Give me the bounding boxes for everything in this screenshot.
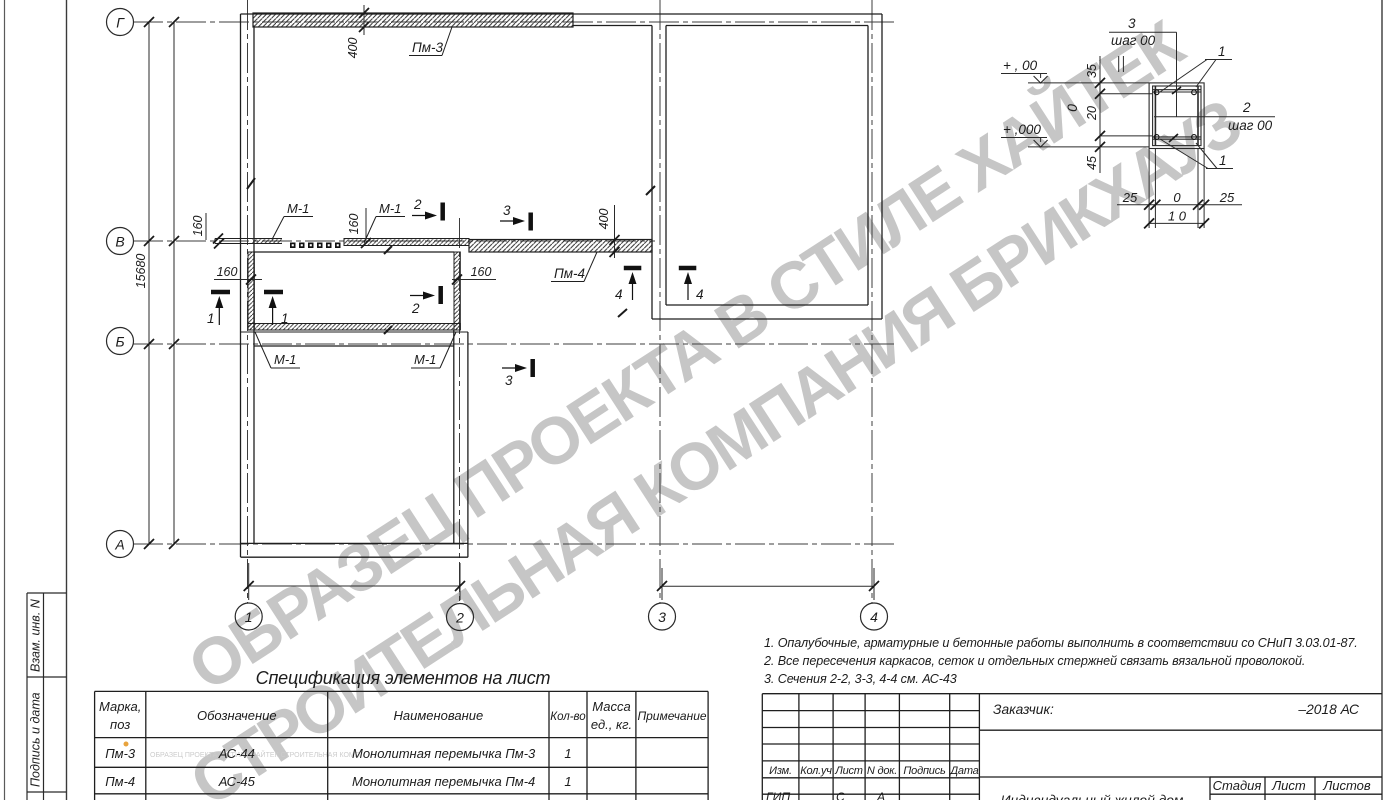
svg-text:Листов: Листов (1322, 778, 1371, 793)
svg-text:400: 400 (346, 38, 360, 59)
svg-text:Подпись: Подпись (903, 765, 946, 777)
svg-text:160: 160 (471, 265, 492, 279)
svg-text:Лист: Лист (834, 765, 863, 777)
svg-text:Лист: Лист (1271, 778, 1306, 793)
svg-text:+ , 00: + , 00 (1003, 58, 1038, 73)
svg-text:0: 0 (1173, 190, 1181, 205)
svg-text:1. Опалубочные, арматурные: 1. Опалубочные, арматурные и бетонные ра… (764, 636, 1358, 650)
svg-text:25: 25 (1122, 190, 1138, 205)
svg-text:Марка,: Марка, (99, 699, 141, 714)
svg-text:1: 1 (281, 311, 289, 326)
svg-text:А: А (876, 790, 885, 800)
svg-text:АС-44: АС-44 (218, 746, 255, 761)
svg-text:2: 2 (413, 197, 422, 212)
svg-text:20: 20 (1085, 106, 1099, 121)
svg-text:М-1: М-1 (379, 201, 401, 216)
svg-text:М-1: М-1 (287, 201, 309, 216)
svg-text:М-1: М-1 (414, 352, 436, 367)
svg-text:Наименование: Наименование (394, 708, 484, 723)
svg-text:4: 4 (870, 609, 878, 625)
svg-text:Г: Г (116, 15, 125, 31)
svg-text:160: 160 (217, 265, 238, 279)
svg-text:М-1: М-1 (274, 352, 296, 367)
svg-text:ед., кг.: ед., кг. (591, 717, 632, 732)
svg-text:Подпись и дата: Подпись и дата (29, 692, 43, 787)
svg-text:Пм-4: Пм-4 (105, 774, 135, 789)
svg-text:Пм-3: Пм-3 (105, 746, 136, 761)
svg-text:1 0: 1 0 (1168, 209, 1187, 224)
svg-text:1: 1 (564, 774, 571, 789)
svg-text:Кол-во: Кол-во (550, 711, 586, 723)
svg-text:0: 0 (1064, 104, 1080, 112)
svg-text:Изм.: Изм. (769, 765, 792, 777)
svg-text:Обозначение: Обозначение (197, 708, 277, 723)
svg-text:Заказчик:: Заказчик: (993, 702, 1054, 717)
svg-text:45: 45 (1085, 156, 1099, 170)
svg-text:Пм-3: Пм-3 (412, 40, 444, 55)
svg-text:Б: Б (115, 334, 124, 350)
svg-text:Примечание: Примечание (637, 709, 706, 723)
svg-text:ГИП: ГИП (766, 790, 790, 800)
svg-text:1: 1 (1218, 44, 1226, 59)
svg-text:ОБРАЗЕЦ ПРОЕКТА В СТИЛЕ ХАЙТЕК: ОБРАЗЕЦ ПРОЕКТА В СТИЛЕ ХАЙТЕК (175, 5, 1197, 705)
svg-text:Монолитная перемычка Пм-3: Монолитная перемычка Пм-3 (352, 746, 536, 761)
svg-text:СТРОИТЕЛЬНАЯ КОМПАНИЯ БРИКХАУЗ: СТРОИТЕЛЬНАЯ КОМПАНИЯ БРИКХАУЗ (177, 85, 1252, 800)
svg-text:Монолитная перемычка Пм-4: Монолитная перемычка Пм-4 (352, 774, 535, 789)
svg-text:15680: 15680 (134, 254, 148, 289)
svg-text:400: 400 (597, 209, 611, 230)
svg-text:25: 25 (1219, 190, 1235, 205)
svg-text:1: 1 (207, 311, 215, 326)
svg-text:С: С (836, 790, 845, 800)
svg-text:2. Все пересечения каркасов: 2. Все пересечения каркасов, сеток и отд… (763, 654, 1305, 668)
svg-text:3: 3 (503, 203, 511, 218)
svg-text:1: 1 (564, 746, 571, 761)
svg-text:1: 1 (245, 609, 253, 625)
svg-text:Масса: Масса (592, 699, 630, 714)
svg-text:Индивидуальный жилой дом: Индивидуальный жилой дом (1001, 793, 1184, 800)
svg-text:4: 4 (696, 287, 704, 302)
svg-text:Спецификация элементов на л: Спецификация элементов на лист (256, 668, 551, 688)
svg-text:3: 3 (1128, 16, 1136, 31)
svg-text:поз: поз (110, 717, 130, 732)
svg-text:шаг 00: шаг 00 (1111, 33, 1156, 48)
svg-text:3. Сечения 2-2, 3-3, 4-4: 3. Сечения 2-2, 3-3, 4-4 см. АС-43 (764, 672, 957, 686)
svg-text:N док.: N док. (867, 765, 897, 777)
svg-text:2: 2 (455, 610, 464, 626)
svg-text:Кол.уч: Кол.уч (800, 765, 832, 777)
svg-text:Стадия: Стадия (1213, 778, 1262, 793)
svg-text:4: 4 (615, 287, 623, 302)
svg-text:–2018 АС: –2018 АС (1297, 702, 1360, 717)
svg-text:Пм-4: Пм-4 (554, 266, 585, 281)
svg-text:А: А (114, 537, 124, 553)
svg-text:2: 2 (1242, 100, 1251, 115)
svg-text:35: 35 (1085, 64, 1099, 78)
svg-text:160: 160 (191, 216, 205, 237)
svg-text:3: 3 (505, 373, 513, 388)
svg-text:160: 160 (347, 214, 361, 235)
svg-text:Взам. инв. N: Взам. инв. N (29, 598, 43, 672)
svg-text:В: В (115, 234, 124, 250)
svg-text:2: 2 (411, 301, 420, 316)
svg-text:1: 1 (1219, 153, 1227, 168)
svg-text:АС-45: АС-45 (218, 774, 256, 789)
svg-text:3: 3 (658, 609, 666, 625)
svg-text:Дата: Дата (948, 765, 978, 777)
svg-text:+ ,000: + ,000 (1003, 122, 1041, 137)
svg-text:шаг 00: шаг 00 (1228, 118, 1273, 133)
